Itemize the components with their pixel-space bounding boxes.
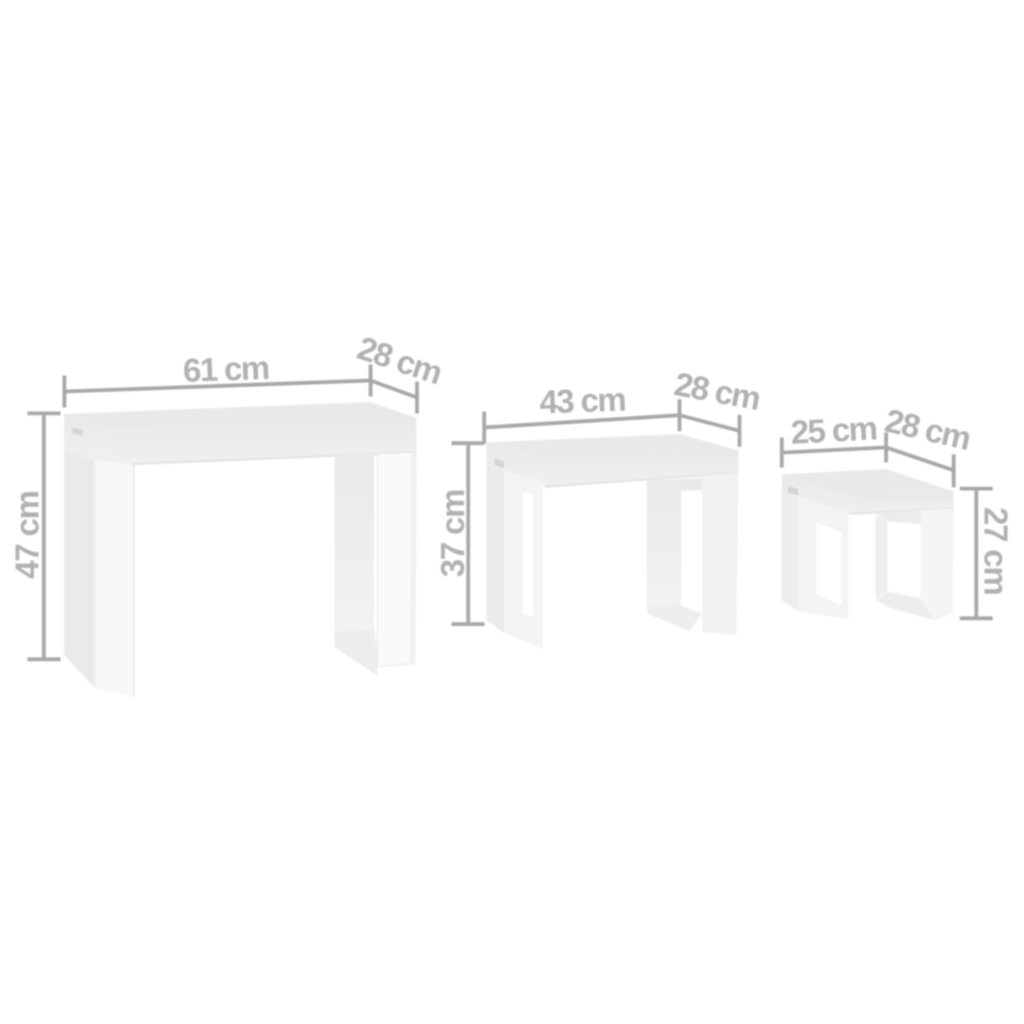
svg-text:25 cm: 25 cm — [790, 409, 878, 450]
svg-text:37 cm: 37 cm — [434, 490, 471, 578]
svg-text:61 cm: 61 cm — [182, 349, 269, 389]
svg-text:43 cm: 43 cm — [539, 381, 626, 421]
svg-text:47 cm: 47 cm — [9, 491, 46, 579]
svg-text:27 cm: 27 cm — [977, 507, 1014, 595]
